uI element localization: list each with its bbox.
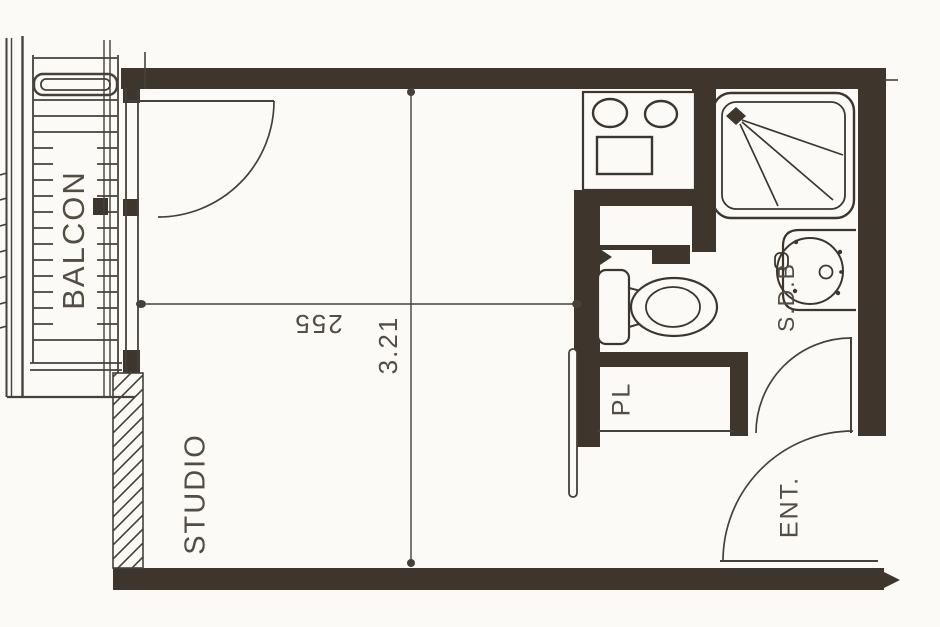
toilet-tank [598, 270, 629, 344]
balcony: BALCON [0, 36, 135, 397]
washbasin-fitting-dots [793, 240, 843, 295]
shower [713, 93, 854, 218]
closet-label: PL [608, 382, 636, 417]
dimension-end-dot [407, 559, 415, 567]
bottom-wall [113, 568, 884, 590]
kitchenette [583, 92, 695, 190]
closet-sliding-panel [569, 349, 577, 497]
balcony-label: BALCON [56, 170, 91, 309]
depth-dimension-label: 3.21 [373, 316, 403, 375]
service-wall-niche [600, 206, 688, 245]
width-dimension-label: 255 [293, 309, 342, 339]
balcony-railing [0, 36, 23, 397]
doors [128, 101, 878, 561]
bathroom-door-swing [756, 338, 851, 433]
dimension-end-dot [407, 88, 415, 96]
entrance-arrow-icon [884, 572, 900, 588]
top-wall [121, 68, 886, 89]
service-wall-left [574, 190, 600, 447]
floorplan-canvas: BALCON [0, 0, 940, 627]
bathroom-door [756, 337, 851, 433]
railing-post-mid [93, 198, 108, 215]
shower-spray-icon [740, 120, 843, 206]
studio-label: STUDIO [180, 433, 212, 555]
studio-door-swing [158, 101, 274, 217]
toilet [576, 270, 717, 344]
closet-wall-right [730, 352, 748, 436]
hatched-wall [113, 373, 143, 568]
kitchen-counter [583, 92, 695, 190]
right-wall [858, 68, 886, 436]
closet-wall-top [585, 352, 748, 367]
entrance-label: ENT. [776, 476, 804, 538]
floorplan-drawing: BALCON [0, 0, 940, 627]
dimension-end-dot [136, 300, 146, 308]
dimension-end-dot [572, 300, 582, 308]
room-labels: STUDIO ENT. [180, 433, 804, 555]
faucet-icon [820, 266, 833, 279]
bathroom-label: S.D.B [773, 262, 799, 332]
studio-door [128, 101, 274, 217]
